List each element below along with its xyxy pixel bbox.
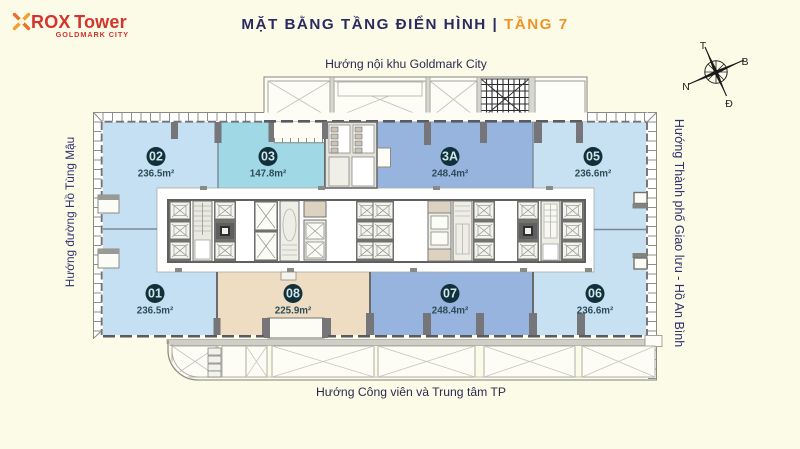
svg-text:Hướng đường Hồ Tùng Mậu: Hướng đường Hồ Tùng Mậu bbox=[63, 137, 77, 287]
svg-text:236.5m²: 236.5m² bbox=[137, 306, 174, 317]
svg-text:248.4m²: 248.4m² bbox=[432, 169, 469, 180]
svg-text:T: T bbox=[700, 40, 707, 52]
svg-text:05: 05 bbox=[586, 150, 600, 164]
svg-text:Hướng Công viên và Trung tâm T: Hướng Công viên và Trung tâm TP bbox=[316, 385, 506, 399]
svg-text:02: 02 bbox=[149, 150, 163, 164]
svg-text:236.6m²: 236.6m² bbox=[575, 169, 612, 180]
svg-text:147.8m²: 147.8m² bbox=[250, 169, 287, 180]
svg-text:N: N bbox=[682, 81, 690, 93]
svg-text:Đ: Đ bbox=[725, 98, 733, 110]
svg-text:06: 06 bbox=[588, 287, 602, 301]
svg-text:Hướng nội khu Goldmark City: Hướng nội khu Goldmark City bbox=[325, 57, 488, 71]
svg-text:B: B bbox=[741, 56, 748, 68]
svg-text:Hướng Thành phố Giao lưu - Hồ: Hướng Thành phố Giao lưu - Hồ An Bình bbox=[672, 119, 686, 347]
svg-text:3A: 3A bbox=[442, 150, 458, 164]
svg-text:236.5m²: 236.5m² bbox=[138, 169, 175, 180]
svg-text:03: 03 bbox=[261, 150, 275, 164]
svg-text:01: 01 bbox=[148, 287, 162, 301]
svg-text:GOLDMARK CITY: GOLDMARK CITY bbox=[56, 30, 129, 39]
svg-text:236.6m²: 236.6m² bbox=[577, 306, 614, 317]
svg-text:07: 07 bbox=[443, 287, 457, 301]
svg-text:08: 08 bbox=[286, 287, 300, 301]
svg-text:248.4m²: 248.4m² bbox=[432, 306, 469, 317]
svg-text:MẶT BẰNG TẦNG ĐIỂN HÌNH | TẦNG: MẶT BẰNG TẦNG ĐIỂN HÌNH | TẦNG 7 bbox=[241, 15, 568, 33]
svg-text:225.9m²: 225.9m² bbox=[275, 306, 312, 317]
svg-text:ROXTower: ROXTower bbox=[31, 12, 127, 32]
